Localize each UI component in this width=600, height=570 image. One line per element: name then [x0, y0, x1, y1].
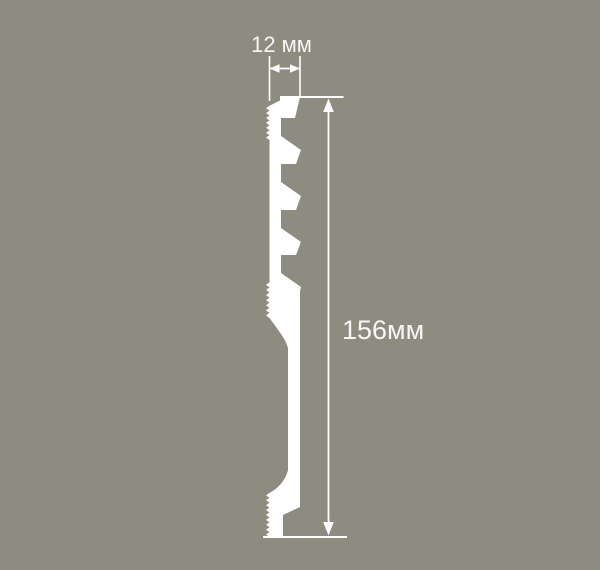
drawing-canvas: 12 мм 156мм	[0, 0, 600, 570]
height-dimension-label: 156мм	[342, 315, 424, 345]
width-dimension-label: 12 мм	[251, 32, 312, 57]
dimension-drawing: 12 мм 156мм	[0, 0, 600, 570]
